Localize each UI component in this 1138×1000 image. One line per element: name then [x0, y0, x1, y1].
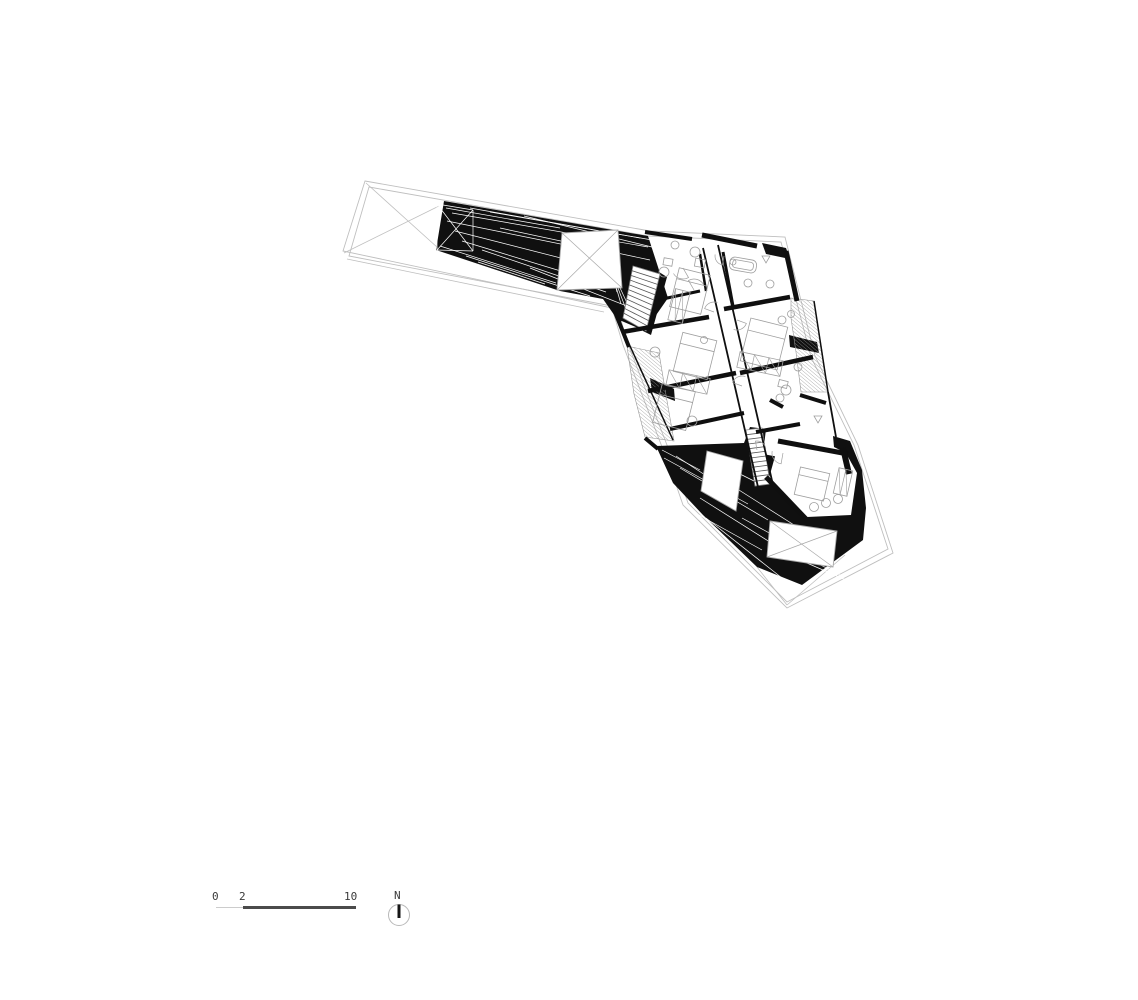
compass-icon	[386, 902, 412, 928]
scale-bar-thin-segment	[216, 907, 243, 908]
scale-bar-label: 10	[344, 891, 357, 902]
page-canvas: 0210 N	[0, 0, 1138, 1000]
scale-bar-thick-segment	[243, 906, 356, 909]
scale-bar-label: 0	[212, 891, 219, 902]
north-indicator	[386, 902, 412, 932]
scale-bar-label: 2	[239, 891, 246, 902]
floor-plan-drawing	[0, 0, 1138, 1000]
north-label: N	[394, 890, 401, 901]
